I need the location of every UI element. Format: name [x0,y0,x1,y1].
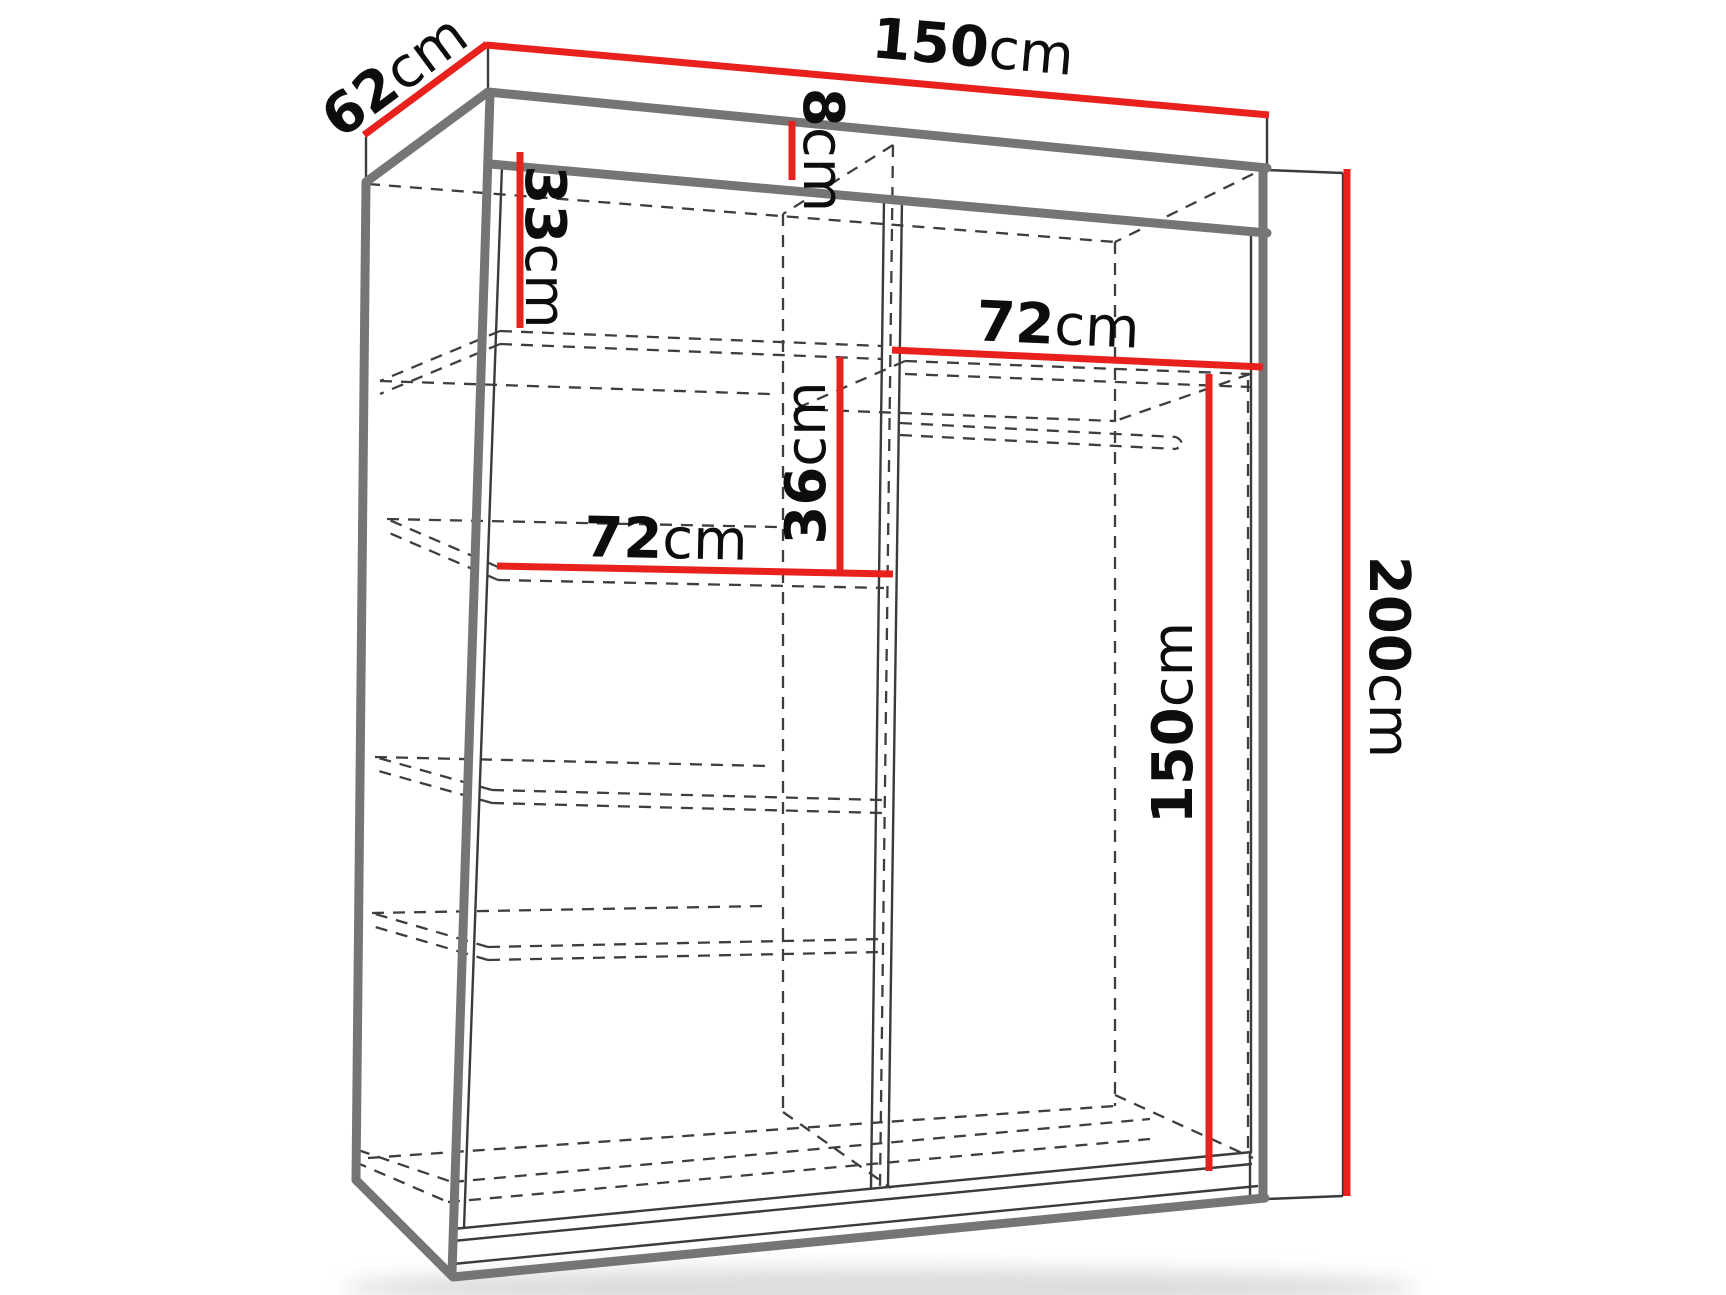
dimension-unit: cm [1053,293,1141,362]
dimension-unit: cm [662,507,749,574]
dimension-value: 150 [1141,707,1206,824]
dimension-label-left-shelf-width: 72cm [584,510,748,569]
dimension-unit: cm [1356,673,1421,758]
dimension-label-top-frame: 8cm [794,88,850,212]
cabinet-thick-edges [356,92,1267,1277]
wardrobe-line-art [0,0,1726,1295]
dimension-value: 72 [975,289,1056,357]
dimension-value: 72 [584,505,663,572]
hanging-rail [900,423,1182,449]
dimension-unit: cm [986,17,1077,89]
dimension-value: 8 [790,88,855,127]
dimension-label-hanging-height: 150cm [1146,622,1202,824]
dimension-label-right-shelf-width: 72cm [975,294,1141,357]
dimension-unit: cm [790,127,855,212]
dimension-unit: cm [1141,622,1206,707]
dimension-value: 33 [512,165,577,243]
dimension-label-shelf-gap: 36cm [779,381,835,544]
dimension-unit: cm [512,243,577,328]
dimension-value: 150 [869,6,991,81]
wardrobe-dimension-diagram: 150cm 62cm 8cm 33cm 72cm 36cm 72cm 150cm… [0,0,1726,1295]
dimension-value: 200 [1356,556,1421,673]
dimension-unit: cm [774,381,839,466]
dimension-value: 36 [774,467,839,545]
dimension-label-total-height: 200cm [1360,556,1416,758]
dimension-label-top-shelf-drop: 33cm [516,165,572,328]
